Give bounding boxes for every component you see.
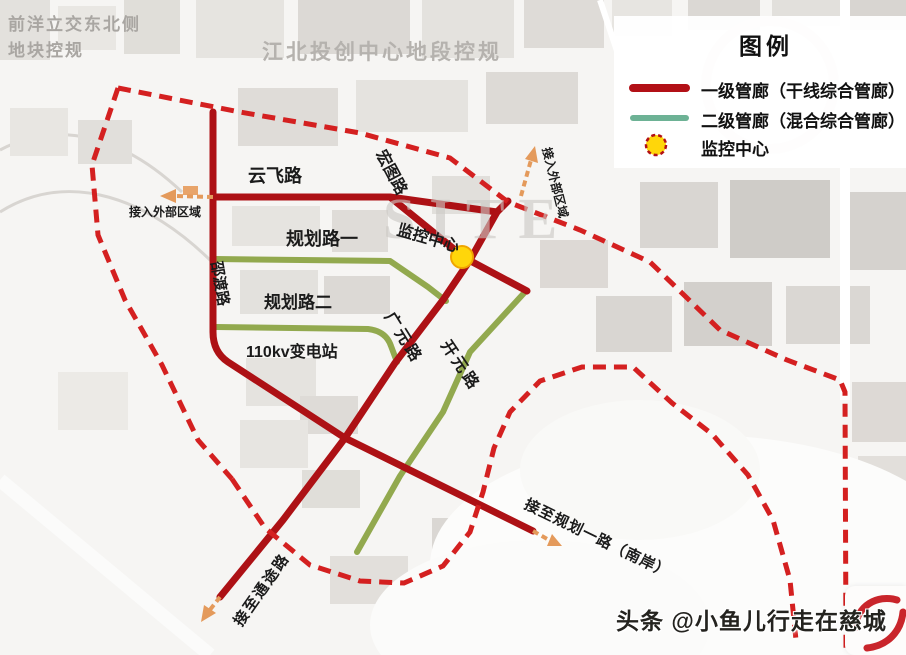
- road-label-yunfei-lu: 云飞路: [248, 166, 302, 188]
- road-label-guihua-2: 规划路二: [264, 293, 332, 313]
- road-label-guihua-1: 规划路一: [286, 229, 358, 251]
- legend-item-monitor-center: 监控中心: [701, 135, 769, 160]
- author-watermark: 头条 @小鱼儿行走在慈城: [616, 608, 887, 636]
- legend-title: 图例: [739, 33, 793, 61]
- arrow-tongtu-line: [209, 597, 220, 611]
- arrow-ext-top-head: [525, 146, 538, 163]
- yellow-dot-swatch: [646, 135, 666, 155]
- plan-note-line2: 地块控规: [8, 38, 141, 64]
- legend-item-primary-corridor: 一级管廊（干线综合管廊）: [701, 77, 905, 102]
- arrow-ext-left-head: [160, 189, 176, 203]
- plan-note-jiangbei: 江北投创中心地段控规: [262, 40, 502, 65]
- planning-map: 前洋立交东北侧 地块控规 江北投创中心地段控规 SITE 云飞路 宏图路 规划路…: [0, 0, 906, 655]
- plan-note-northwest: 前洋立交东北侧 地块控规: [8, 12, 141, 63]
- annotation-ext-access-west: 接入外部区域: [129, 205, 201, 219]
- substation-label: 110kv变电站: [246, 343, 338, 362]
- arrow-ext-left-line: [176, 196, 213, 197]
- plan-note-line1: 前洋立交东北侧: [8, 12, 141, 38]
- legend-item-secondary-corridor: 二级管廊（混合综合管廊）: [701, 107, 905, 132]
